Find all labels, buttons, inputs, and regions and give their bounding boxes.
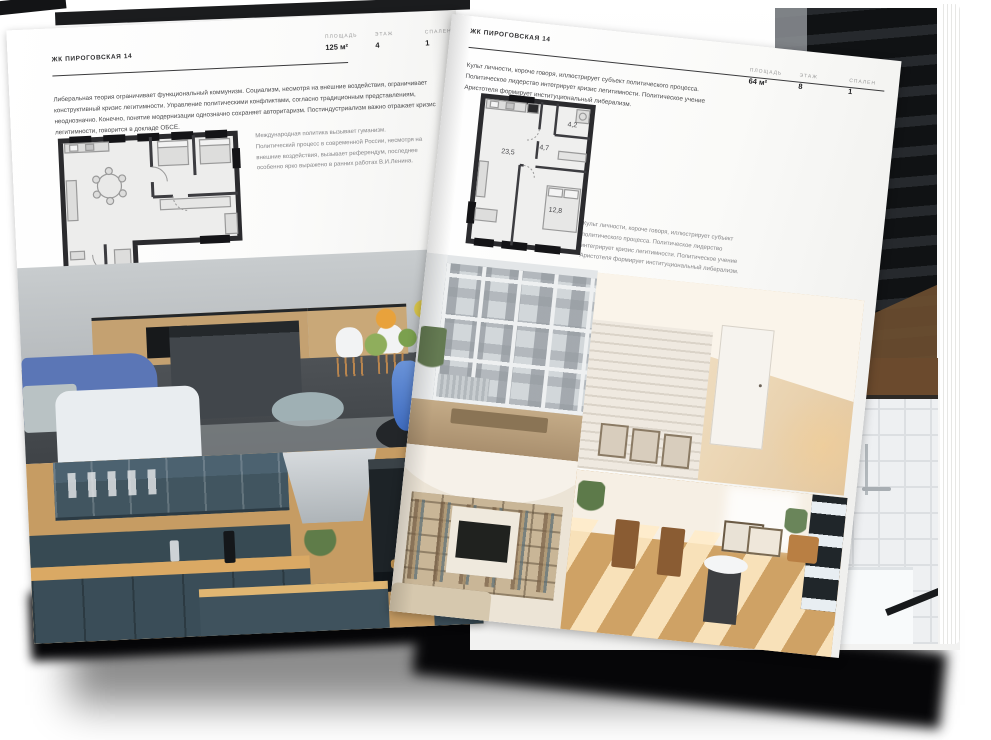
magazine-mockup: ЖК ПИРОГОВСКАЯ 14 ПЛОЩАДЬ 125 м² ЭТАЖ 4 … [0, 0, 991, 740]
wine-bottle [223, 530, 236, 563]
left-header-rule [52, 62, 348, 76]
room-living-label: 23,5 [501, 148, 515, 156]
door-knob [758, 384, 761, 387]
sunlight-glow [759, 393, 854, 496]
stat-floor-value: 4 [375, 39, 409, 50]
stat-floor-label: ЭТАЖ [799, 73, 833, 83]
picture-frame [629, 428, 660, 464]
sofa-blanket [54, 386, 201, 463]
stat-floor-value: 8 [798, 82, 833, 95]
right-floor-plan: 23,5 4,7 4,2 12,8 [453, 82, 608, 265]
stat-area: ПЛОЩАДЬ 125 м² [325, 33, 360, 53]
stat-area: ПЛОЩАДЬ 64 м² [748, 67, 784, 88]
stat-area-label: ПЛОЩАДЬ [749, 67, 783, 77]
plant [783, 508, 808, 542]
stat-bedrooms-label: СПАЛЕН [849, 78, 883, 88]
stat-floor: ЭТАЖ 8 [798, 73, 834, 94]
stat-bedrooms: СПАЛЕН 1 [848, 78, 884, 99]
photo-shelves-tv [389, 444, 578, 629]
leaning-frame [746, 526, 783, 557]
stat-area-value: 64 м² [748, 76, 783, 89]
stat-bedrooms-value: 1 [848, 87, 883, 100]
dishes [67, 469, 158, 498]
left-project-title: ЖК ПИРОГОВСКАЯ 14 [52, 53, 133, 64]
right-project-title: ЖК ПИРОГОВСКАЯ 14 [470, 28, 551, 43]
plant [575, 479, 606, 520]
room-bedroom-label: 12,8 [548, 207, 562, 215]
page-stack-edge [940, 4, 960, 644]
stat-area-value: 125 м² [325, 42, 359, 53]
right-plan-wrap: 23,5 4,7 4,2 12,8 [453, 82, 608, 265]
left-plan-caption: Международная политика вызывает гуманизм… [255, 124, 425, 175]
range-hood [282, 448, 380, 524]
picture-frame [661, 433, 692, 469]
stat-floor: ЭТАЖ 4 [375, 30, 410, 50]
wood-chair [611, 519, 640, 569]
left-page-stats: ПЛОЩАДЬ 125 м² ЭТАЖ 4 СПАЛЕН 1 [325, 28, 458, 52]
picture-frame [597, 423, 628, 459]
room-hall-label: 4,7 [539, 144, 549, 152]
stat-floor-label: ЭТАЖ [375, 30, 409, 38]
shower-mixer [862, 487, 891, 491]
faucet [169, 540, 179, 562]
right-page: ЖК ПИРОГОВСКАЯ 14 ПЛОЩАДЬ 64 м² ЭТАЖ 8 С… [389, 14, 901, 658]
photo-sunny-room [560, 470, 847, 658]
photo-window-room [407, 253, 598, 462]
stat-area-label: ПЛОЩАДЬ [325, 33, 359, 41]
photo-attic-room [577, 273, 864, 496]
right-page-stats: ПЛОЩАДЬ 64 м² ЭТАЖ 8 СПАЛЕН 1 [748, 67, 897, 100]
photo-kitchen-island [17, 248, 475, 464]
tv-screen [455, 520, 510, 562]
herb-plant [299, 529, 341, 560]
right-plan-caption: Культ личности, короче говоря, иллюстрир… [579, 219, 755, 280]
room-bath-label: 4,2 [567, 121, 577, 129]
